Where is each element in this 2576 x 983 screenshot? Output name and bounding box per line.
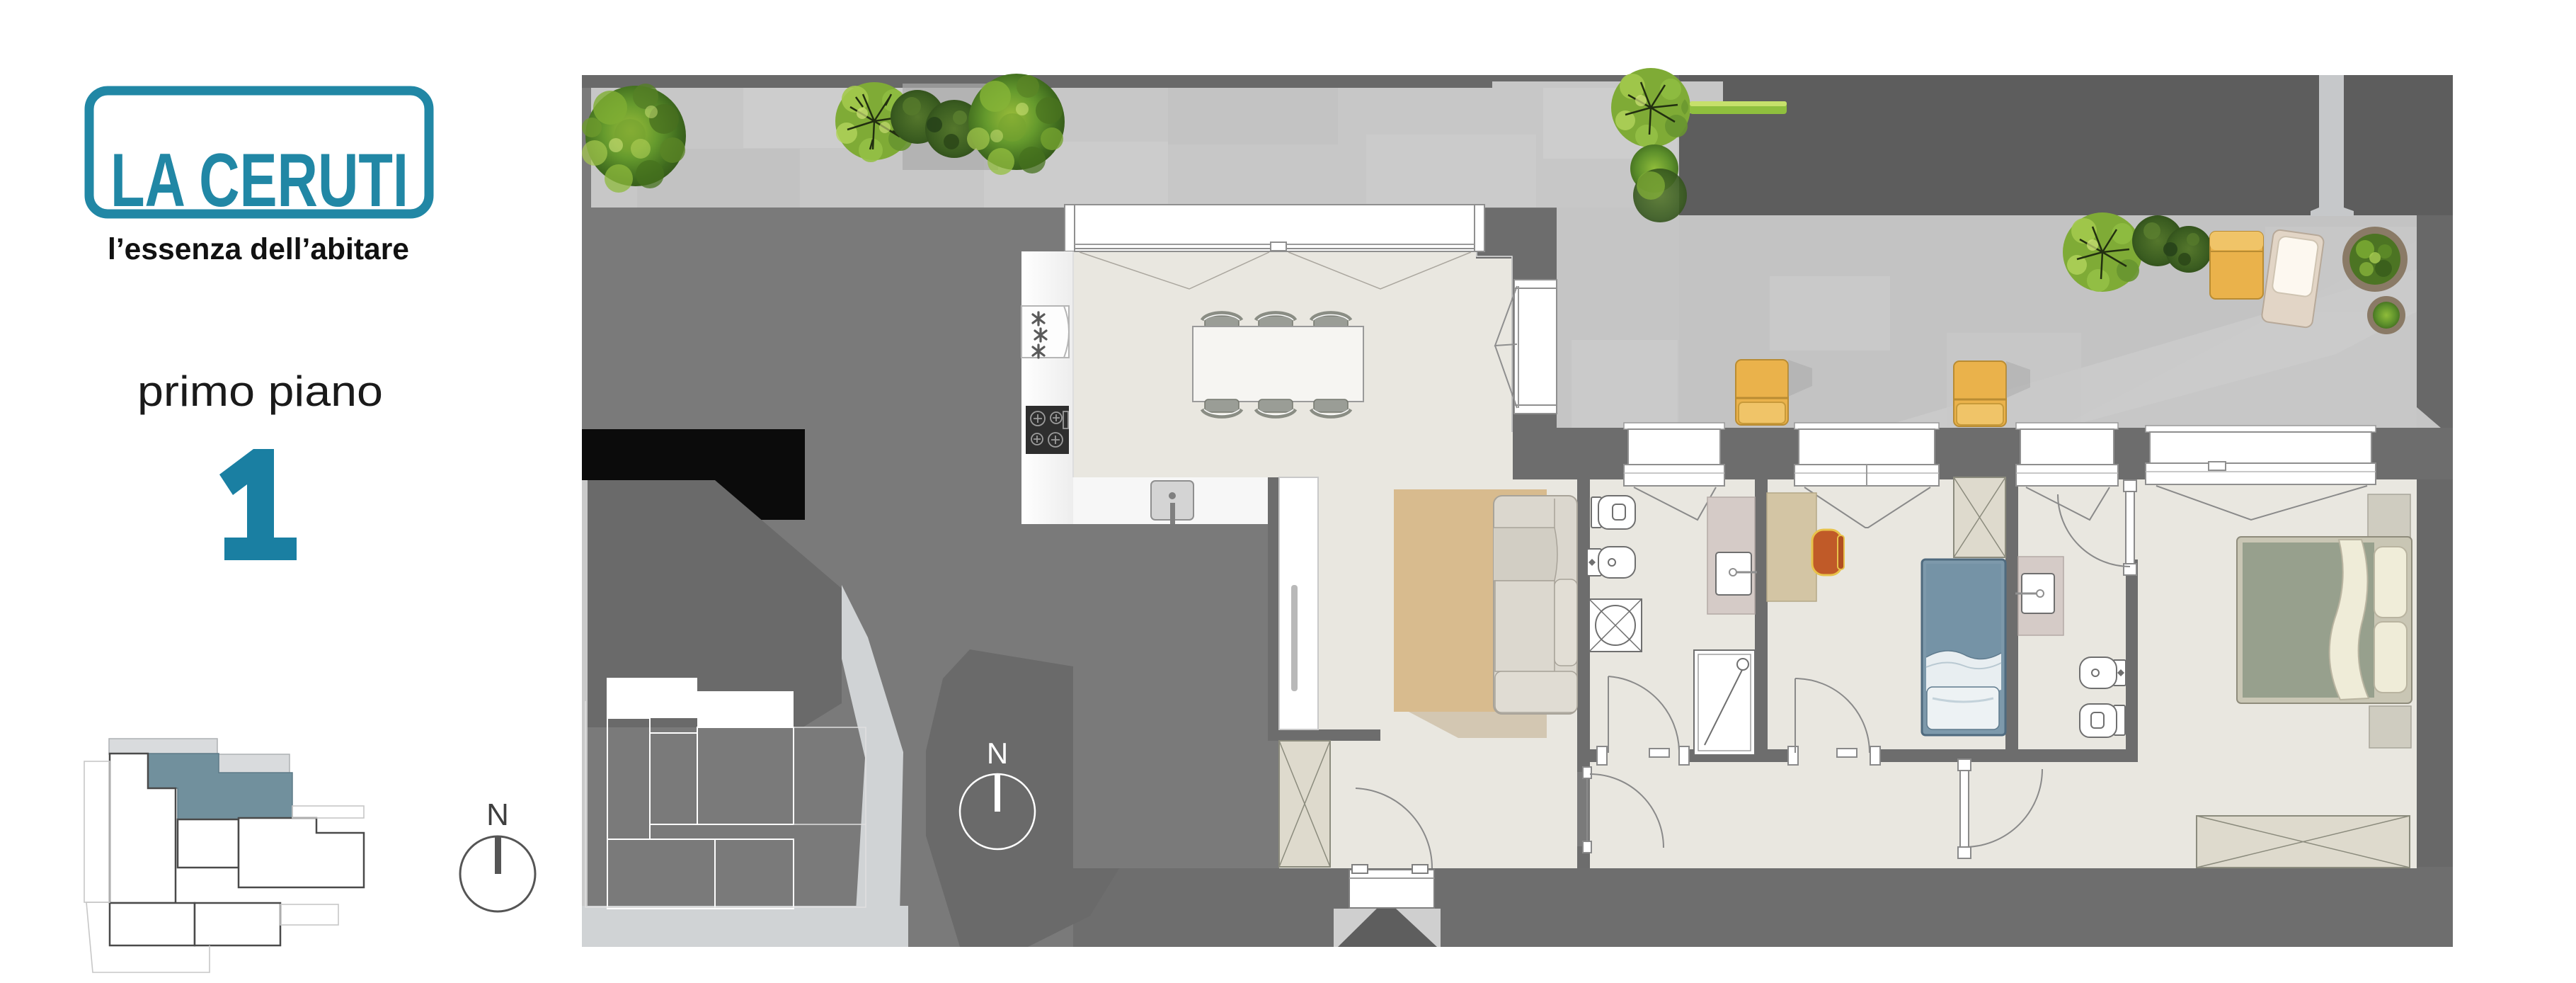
svg-text:primo piano: primo piano [137,368,383,415]
svg-text:l’essenza dell’abitare: l’essenza dell’abitare [108,232,409,266]
svg-text:N: N [987,737,1008,770]
svg-text:N: N [486,797,509,832]
svg-text:LA CERUTI: LA CERUTI [110,137,408,222]
